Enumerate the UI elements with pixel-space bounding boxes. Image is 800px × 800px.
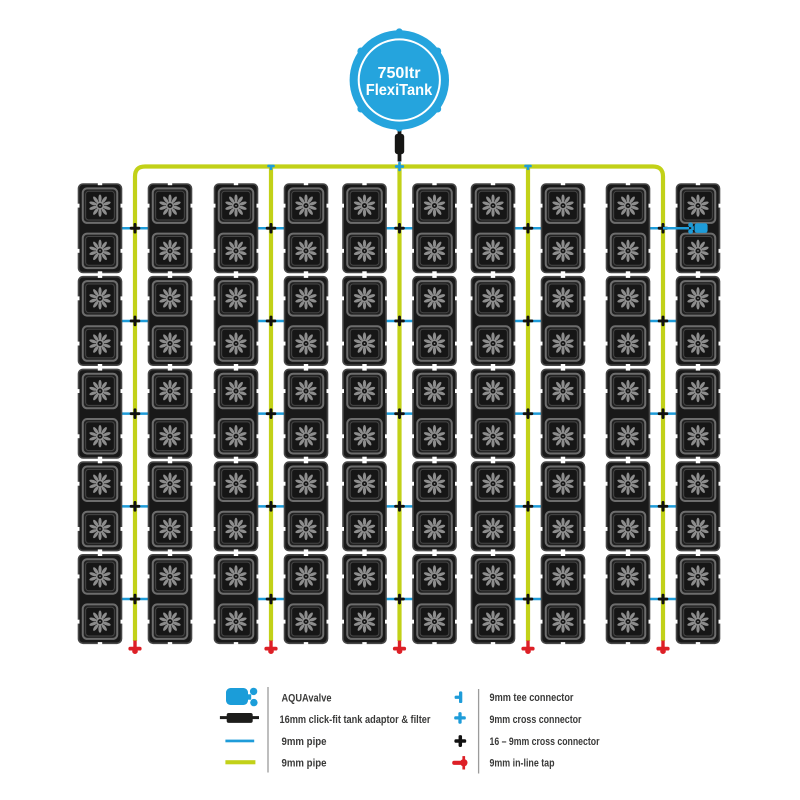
svg-text:16mm click-fit tank adaptor &: 16mm click-fit tank adaptor & filter: [280, 714, 431, 726]
svg-text:16 – 9mm cross connector: 16 – 9mm cross connector: [490, 736, 600, 748]
svg-text:FlexiTank: FlexiTank: [366, 82, 433, 99]
svg-text:9mm cross connector: 9mm cross connector: [490, 714, 582, 726]
svg-text:9mm pipe: 9mm pipe: [282, 736, 327, 748]
svg-text:9mm pipe: 9mm pipe: [282, 757, 327, 769]
svg-text:9mm tee connector: 9mm tee connector: [490, 692, 574, 704]
svg-text:AQUAvalve: AQUAvalve: [282, 693, 332, 705]
svg-text:750ltr: 750ltr: [378, 65, 421, 82]
svg-text:9mm in-line tap: 9mm in-line tap: [490, 757, 555, 769]
